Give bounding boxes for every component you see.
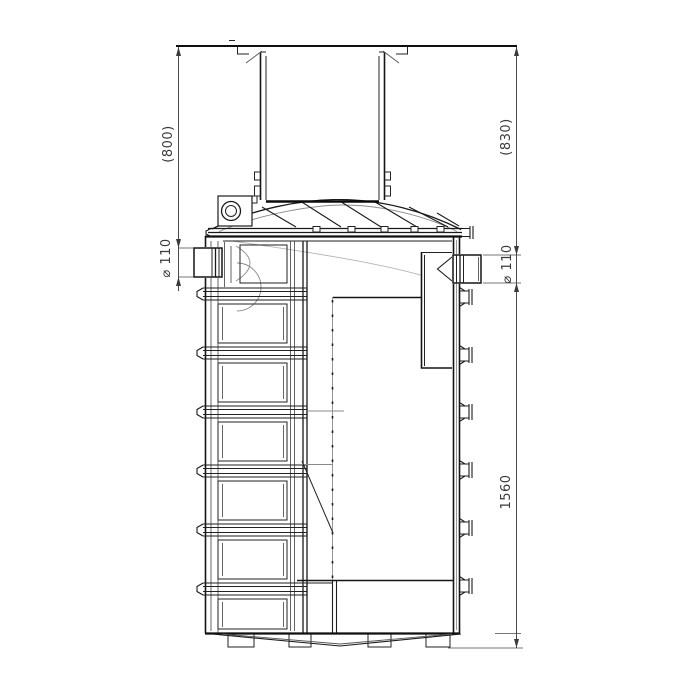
inlet-pipe bbox=[193, 247, 223, 278]
technical-drawing-canvas: (800) ⌀ 110 (830) ⌀ 110 1560 bbox=[0, 0, 700, 700]
outlet-pipe bbox=[452, 254, 482, 284]
dimension-label-inlet-diameter: ⌀ 110 bbox=[158, 223, 176, 293]
tank-bottom bbox=[205, 634, 461, 648]
tank-shell-right bbox=[454, 236, 473, 633]
riser-neck bbox=[176, 41, 517, 202]
dimension-label-outlet-diameter: ⌀ 110 bbox=[499, 229, 517, 299]
dimension-label-riser-height: (800) bbox=[160, 109, 178, 179]
lifting-boss bbox=[218, 196, 257, 226]
outlet-baffle-box bbox=[421, 252, 452, 368]
dimension-label-total-height: 1560 bbox=[498, 457, 516, 527]
dimension-label-cover-height: (830) bbox=[498, 102, 516, 172]
tank-shell-left bbox=[197, 236, 344, 633]
drawing-linework bbox=[0, 0, 700, 700]
